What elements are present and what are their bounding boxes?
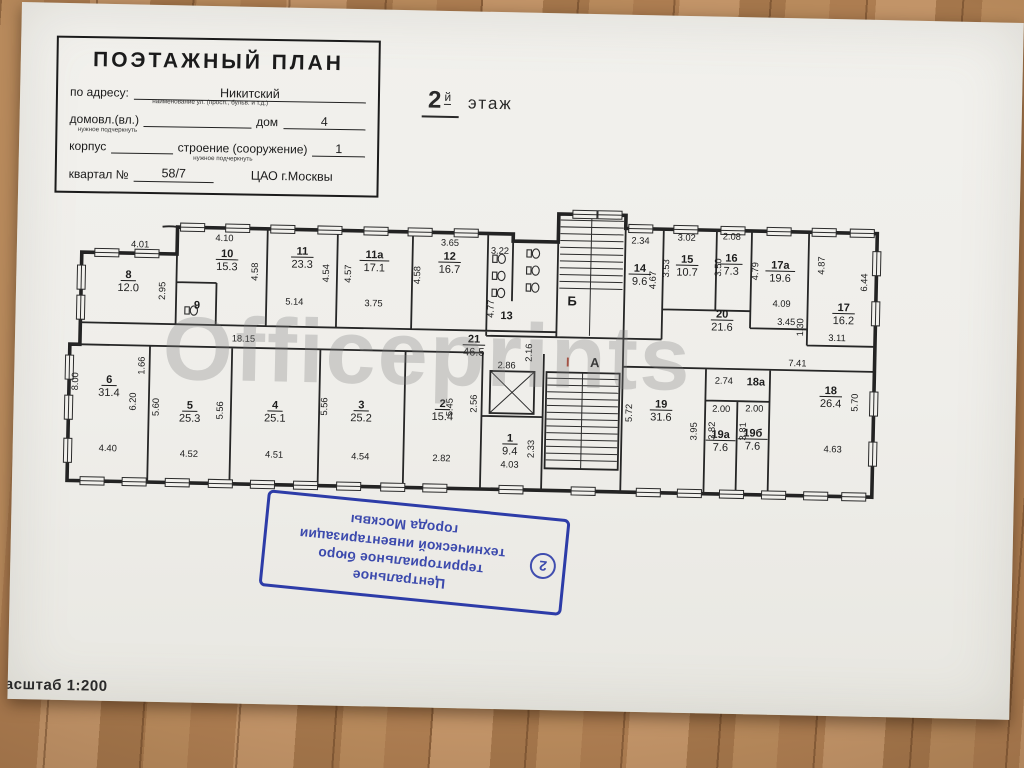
dimension-label: 1.66 <box>136 356 146 374</box>
window-midline <box>122 482 146 483</box>
address-value: Никитский наименование ул. (просп., буль… <box>134 86 366 104</box>
toilet-tank <box>492 289 497 296</box>
address-hint: наименование ул. (просп., бульв. и т.д.) <box>152 99 268 107</box>
dimension-label: 3.45 <box>777 317 795 327</box>
room-number-10: 10 <box>221 248 234 260</box>
window-midline <box>499 489 523 490</box>
room-number-16: 16 <box>725 253 738 265</box>
window-midline <box>719 494 743 495</box>
room-area-12: 16.7 <box>439 264 461 276</box>
structure-label: строение (сооружение) нужное подчеркнуть <box>178 141 308 157</box>
dimension-label: 4.40 <box>99 443 117 453</box>
floor-plan-drawing: 812.091015.31123.311а17.11216.713149.615… <box>62 191 890 520</box>
floor-word: этаж <box>468 93 513 114</box>
room-number-15: 15 <box>681 254 694 266</box>
scale-label: Масштаб 1:200 <box>7 676 107 695</box>
window-midline <box>573 214 597 215</box>
room-area-15: 10.7 <box>676 267 698 279</box>
dimension-label: 3.95 <box>689 422 699 440</box>
dimension-label: 4.52 <box>180 449 198 459</box>
window-midline <box>80 295 81 319</box>
window-midline <box>337 486 361 487</box>
ownership-hint: нужное подчеркнуть <box>78 126 138 134</box>
window-midline <box>80 481 104 482</box>
dimension-label: 5.72 <box>624 404 634 422</box>
window-midline <box>636 492 660 493</box>
dimension-label: 4.51 <box>265 449 283 459</box>
district-value: ЦАО г.Москвы <box>219 170 365 185</box>
window-midline <box>208 483 232 484</box>
building-label: корпус <box>69 139 106 154</box>
dimension-label: 2.08 <box>723 231 741 241</box>
dimension-label: 4.03 <box>500 459 518 469</box>
room-number-8: 8 <box>125 269 131 281</box>
room-fraction-line <box>765 271 795 272</box>
window-midline <box>875 302 876 326</box>
window-midline <box>68 395 69 419</box>
dimension-label: 5.70 <box>850 393 860 411</box>
dimension-label: 3.22 <box>491 246 509 256</box>
window-midline <box>872 442 873 466</box>
window-midline <box>364 231 388 232</box>
room-number-20: 20 <box>716 309 729 321</box>
structure-hint: нужное подчеркнуть <box>193 155 253 163</box>
window-midline <box>873 392 874 416</box>
ownership-value <box>144 126 251 129</box>
title-block: ПОЭТАЖНЫЙ ПЛАН по адресу: Никитский наим… <box>54 36 380 198</box>
dimension-label: 3.53 <box>661 259 671 277</box>
room-number-1: 1 <box>507 432 513 444</box>
window-midline <box>165 482 189 483</box>
room-fraction-line <box>360 260 390 261</box>
stair-a-divider <box>581 373 583 469</box>
window-midline <box>226 228 250 229</box>
stamp-number-badge: 2 <box>529 551 557 579</box>
window-midline <box>762 495 786 496</box>
dimension-label: 3.50 <box>713 258 723 276</box>
ownership-label: домовл.(вл.) нужное подчеркнуть <box>69 112 139 127</box>
dimension-label: 4.01 <box>131 239 149 249</box>
window-midline <box>135 253 159 254</box>
room-number-14: 14 <box>634 263 647 275</box>
room-area-11: 23.3 <box>291 258 313 270</box>
dimension-label: 2.33 <box>526 440 536 458</box>
window-midline <box>250 484 274 485</box>
structure-value: 1 <box>312 143 365 158</box>
window-midline <box>842 497 866 498</box>
floor-plan-document: ПОЭТАЖНЫЙ ПЛАН по адресу: Никитский наим… <box>7 2 1023 720</box>
room-area-14: 9.6 <box>632 276 648 288</box>
room-number-9: 9 <box>194 300 200 312</box>
dimension-label: 7.41 <box>788 358 806 368</box>
stair-label-А: А <box>590 355 600 370</box>
dimension-label: 3.75 <box>364 298 382 308</box>
toilet-fixture <box>532 283 539 292</box>
room-number-19: 19 <box>655 398 668 410</box>
room-area-20: 21.6 <box>711 321 733 333</box>
window-midline <box>95 252 119 253</box>
dimension-label: 3.81 <box>738 422 748 440</box>
toilet-tank <box>527 267 532 274</box>
room-area-6: 31.4 <box>98 387 120 399</box>
room-number-13: 13 <box>500 310 513 322</box>
room-area-3: 25.2 <box>350 412 372 424</box>
room-number-11а: 11а <box>366 249 385 261</box>
sheet-bottom-rule <box>7 700 1023 720</box>
dimension-label: 4.77 <box>486 300 496 318</box>
room-area-19б: 7.6 <box>745 440 761 452</box>
room-number-18: 18 <box>825 385 838 397</box>
room-number-5: 5 <box>187 400 193 412</box>
room-area-17: 16.2 <box>833 315 855 327</box>
dimension-label: 5.45 <box>444 398 454 416</box>
address-label: по адресу: <box>70 85 129 100</box>
floor-number: 2й <box>422 86 460 118</box>
section-mark: I <box>566 354 570 369</box>
window-midline <box>381 487 405 488</box>
house-label: дом <box>256 115 278 129</box>
window-midline <box>408 232 432 233</box>
window-midline <box>804 496 828 497</box>
room-number-17а: 17а <box>771 260 790 272</box>
window-midline <box>674 229 698 230</box>
room-number-18а: 18а <box>747 376 766 388</box>
room-area-21: 46.5 <box>463 346 485 358</box>
toilet-tank <box>185 307 190 314</box>
window-midline <box>677 493 701 494</box>
room-number-6: 6 <box>106 374 112 386</box>
dimension-label: 2.95 <box>157 282 167 300</box>
dimension-label: 2.86 <box>497 360 515 370</box>
dimension-label: 4.54 <box>351 451 369 461</box>
house-value: 4 <box>283 115 366 130</box>
window-midline <box>423 488 447 489</box>
room-number-17: 17 <box>837 302 850 314</box>
dimension-label: 4.87 <box>816 256 826 274</box>
dimension-label: 3.65 <box>441 238 459 248</box>
room-area-19а: 7.6 <box>713 442 729 454</box>
quarter-label: квартал № <box>69 166 129 181</box>
room-number-11: 11 <box>296 246 308 258</box>
toilet-fixture <box>532 249 539 258</box>
room-number-12: 12 <box>443 251 456 263</box>
floor-heading: 2й этаж <box>422 86 513 119</box>
dimension-label: 4.58 <box>250 263 260 281</box>
dimension-label: 4.54 <box>321 264 331 282</box>
toilet-tank <box>526 284 531 291</box>
plan-svg: 812.091015.31123.311а17.11216.713149.615… <box>62 191 890 520</box>
dimension-label: 2.00 <box>745 403 763 413</box>
window-midline <box>767 231 791 232</box>
document-title: ПОЭТАЖНЫЙ ПЛАН <box>70 48 366 77</box>
dimension-label: 5.14 <box>285 296 303 306</box>
building-value <box>111 153 172 155</box>
quarter-value: 58/7 <box>133 167 213 182</box>
window-midline <box>629 228 653 229</box>
window-midline <box>876 252 877 276</box>
dimension-label: 4.67 <box>648 271 658 289</box>
dimension-label: 2.82 <box>432 453 450 463</box>
window-midline <box>571 491 595 492</box>
dimension-label: 2.56 <box>469 394 479 412</box>
room-area-5: 25.3 <box>179 413 201 425</box>
dimension-label: 5.56 <box>215 401 225 419</box>
room-area-19: 31.6 <box>650 411 672 423</box>
dimension-label: 4.79 <box>750 262 760 280</box>
window-midline <box>598 215 622 216</box>
dimension-label: 3.11 <box>828 333 846 343</box>
dimension-label: 4.63 <box>824 444 842 454</box>
dimension-label: 4.57 <box>343 265 353 283</box>
dimension-label: 18.15 <box>232 333 256 343</box>
room-number-3: 3 <box>358 399 364 411</box>
dimension-label: 1.30 <box>795 318 805 336</box>
window-midline <box>67 438 68 462</box>
dimension-label: 5.60 <box>151 398 161 416</box>
window-midline <box>318 230 342 231</box>
dimension-label: 4.10 <box>215 233 233 243</box>
room-number-4: 4 <box>272 399 279 411</box>
dimension-label: 4.09 <box>772 299 790 309</box>
dimension-label: 4.58 <box>412 266 422 284</box>
dimension-label: 6.44 <box>859 273 869 291</box>
room-area-10: 15.3 <box>216 261 238 273</box>
dimension-label: 2.74 <box>715 376 733 386</box>
wooden-desk: ПОЭТАЖНЫЙ ПЛАН по адресу: Никитский наим… <box>0 0 1024 768</box>
room-area-4: 25.1 <box>264 412 286 424</box>
toilet-fixture <box>532 266 539 275</box>
room-area-17а: 19.6 <box>769 273 791 285</box>
toilet-tank <box>492 272 497 279</box>
stair-label-Б: Б <box>567 293 577 308</box>
dimension-label: 6.20 <box>128 392 138 410</box>
toilet-tank <box>493 255 498 262</box>
dimension-label: 2.16 <box>524 344 534 362</box>
window-midline <box>812 232 836 233</box>
elevator-shaft <box>490 371 535 414</box>
window-midline <box>271 229 295 230</box>
toilet-fixture <box>497 288 504 297</box>
window-midline <box>850 233 874 234</box>
window-midline <box>81 265 82 289</box>
toilet-fixture <box>498 271 505 280</box>
room-area-18: 26.4 <box>820 398 842 410</box>
dimension-label: 5.56 <box>319 397 329 415</box>
plan-generated: 812.091015.31123.311а17.11216.713149.615… <box>63 200 882 502</box>
window-midline <box>454 233 478 234</box>
room-area-8: 12.0 <box>117 282 139 294</box>
dimension-label: 2.00 <box>712 404 730 414</box>
room-number-21: 21 <box>468 333 481 345</box>
dimension-label: 3.02 <box>678 232 696 242</box>
room-area-16: 7.3 <box>723 266 739 278</box>
window-midline <box>181 227 205 228</box>
dimension-label: 2.34 <box>631 236 649 246</box>
room-area-11а: 17.1 <box>363 262 385 274</box>
dimension-label: 8.00 <box>70 372 80 390</box>
toilet-tank <box>527 250 532 257</box>
room-area-1: 9.4 <box>502 445 518 457</box>
window-midline <box>294 485 318 486</box>
dimension-label: 3.82 <box>707 422 717 440</box>
